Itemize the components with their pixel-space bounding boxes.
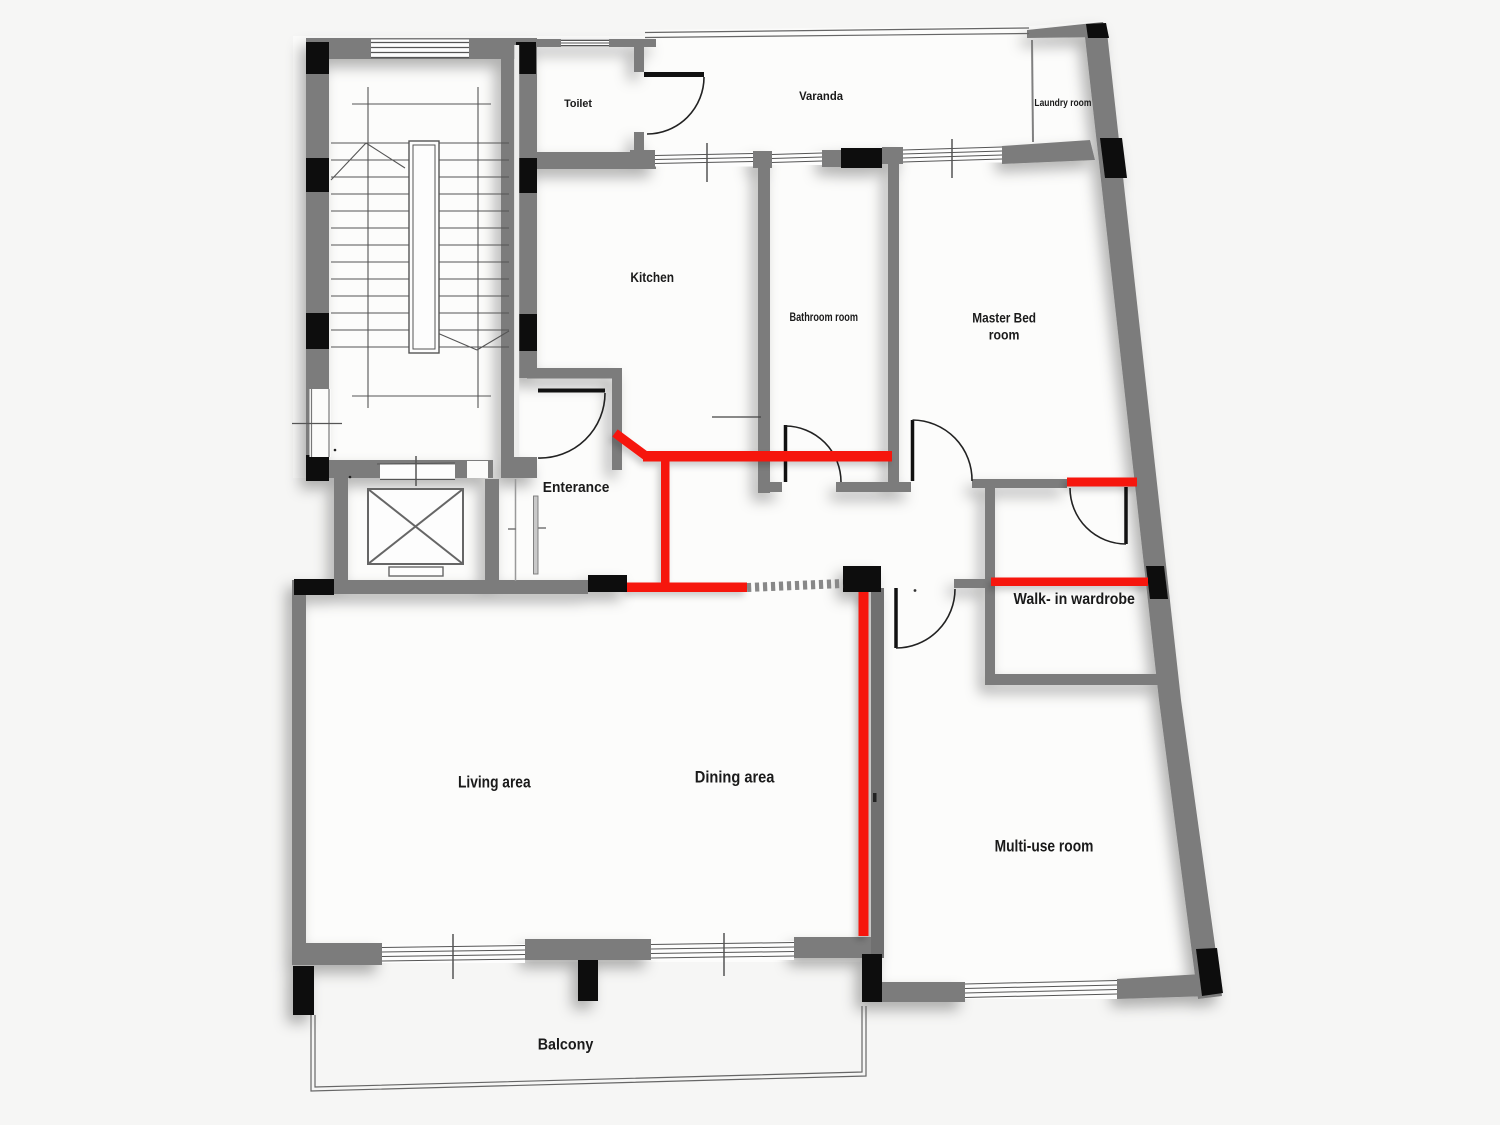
svg-text:Dining area: Dining area [695, 769, 775, 787]
svg-text:Enterance: Enterance [543, 479, 610, 496]
svg-text:Multi-use room: Multi-use room [995, 837, 1094, 856]
svg-text:Laundry room: Laundry room [1034, 98, 1091, 109]
svg-text:Varanda: Varanda [799, 90, 843, 103]
svg-text:Master Bed: Master Bed [972, 311, 1036, 326]
svg-text:Balcony: Balcony [538, 1037, 594, 1054]
svg-text:room: room [989, 328, 1020, 343]
svg-text:Toilet: Toilet [564, 98, 592, 110]
svg-text:Kitchen: Kitchen [630, 270, 674, 285]
svg-text:Walk- in wardrobe: Walk- in wardrobe [1014, 591, 1135, 608]
svg-text:Bathroom room: Bathroom room [790, 310, 859, 324]
svg-text:Living area: Living area [458, 773, 531, 792]
